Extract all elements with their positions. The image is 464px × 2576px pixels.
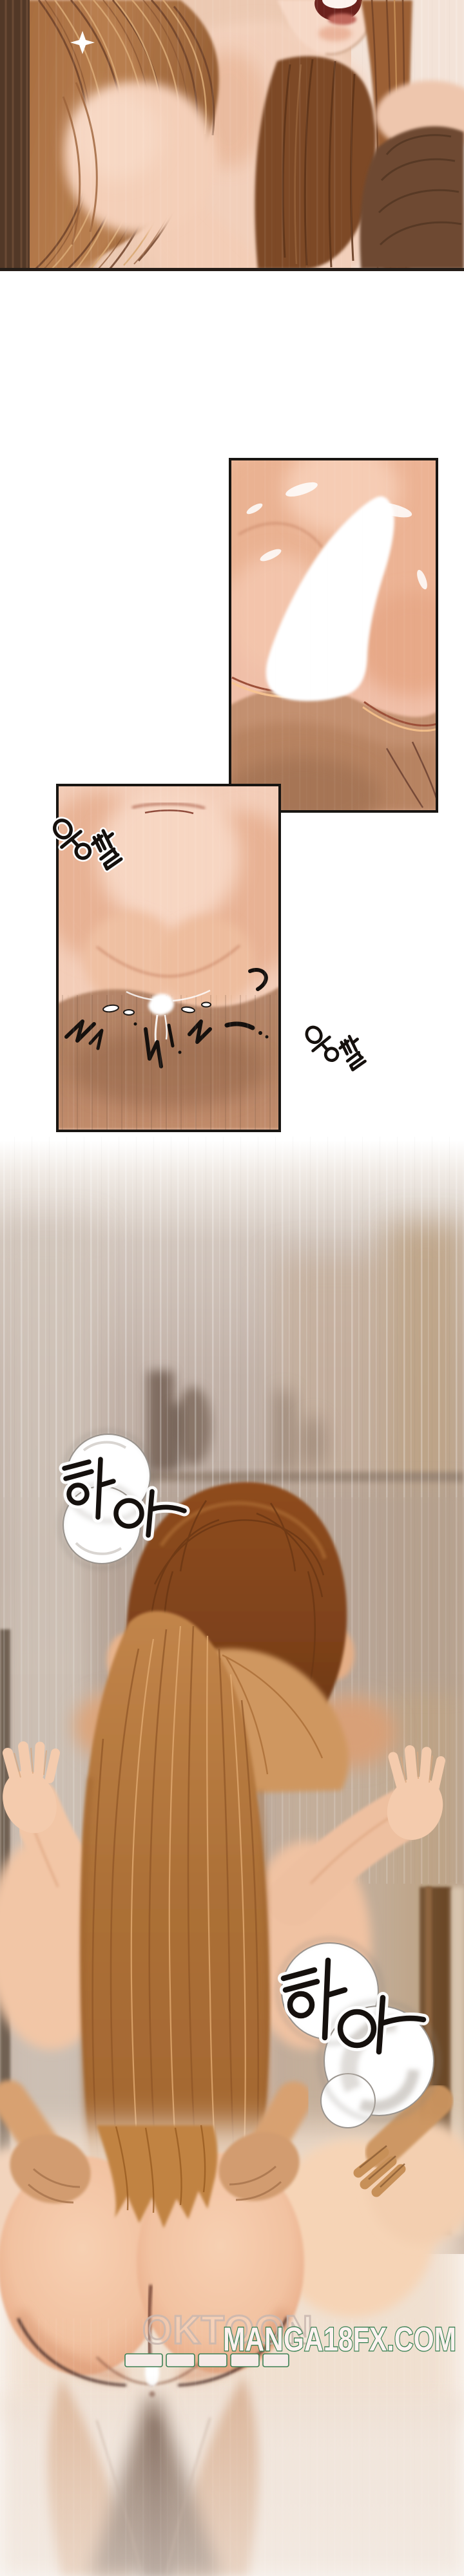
svg-text:MANGA18FX.COM: MANGA18FX.COM xyxy=(223,2321,456,2358)
